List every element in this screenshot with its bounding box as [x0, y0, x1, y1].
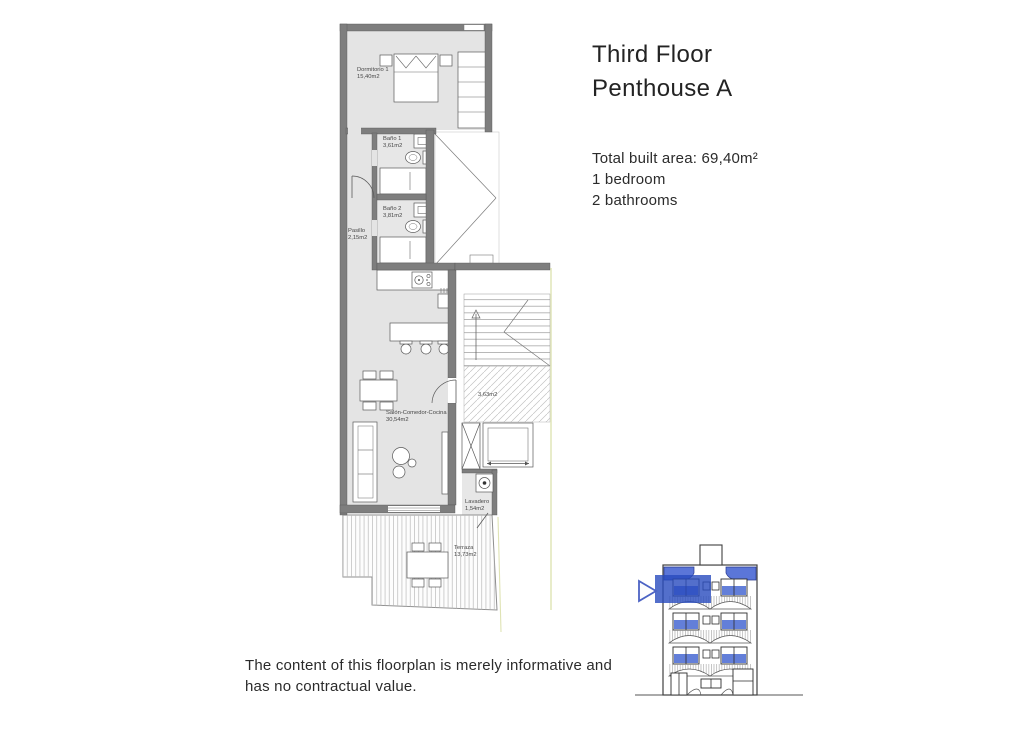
- label-dormitorio-area: 15,40m2: [357, 74, 380, 80]
- label-terraza-area: 13,73m2: [454, 552, 477, 558]
- kitchen-island: [390, 323, 452, 341]
- label-bano1-area: 3,61m2: [383, 143, 402, 149]
- washing-machine: [476, 474, 493, 492]
- penthouse-pointer-icon: [639, 581, 656, 601]
- total-built-area: Total built area: 69,40m²: [592, 148, 758, 169]
- staircase: [464, 294, 550, 422]
- label-salon: Salón-Comedor-Cocina: [386, 410, 447, 416]
- label-pasillo-area: 2,15m2: [348, 235, 367, 241]
- sofa: [353, 422, 377, 502]
- label-bano2-area: 3,81m2: [383, 213, 402, 219]
- label-terraza: Terraza: [454, 545, 474, 551]
- label-lavadero: Lavadero: [465, 499, 489, 505]
- label-pasillo: Pasillo: [348, 228, 365, 234]
- disclaimer-line-1: The content of this floorplan is merely …: [245, 655, 612, 676]
- page: Dormitorio 1 15,40m2 Baño 1 3,61m2 Baño …: [0, 0, 1024, 732]
- title-line-2: Penthouse A: [592, 72, 733, 106]
- label-salon-area: 30,54m2: [386, 417, 409, 423]
- wardrobe: [458, 52, 486, 128]
- terrace: [340, 512, 500, 612]
- landing-area: [464, 366, 550, 422]
- label-lavadero-area: 1,54m2: [465, 506, 484, 512]
- label-dormitorio: Dormitorio 1: [357, 67, 389, 73]
- elevator: [462, 423, 533, 469]
- penthouse-highlight: [655, 575, 711, 603]
- building-elevation: [633, 533, 808, 708]
- page-title: Third Floor Penthouse A: [592, 38, 733, 106]
- stools: [400, 341, 450, 354]
- tv-bench: [442, 432, 448, 494]
- floor-plan: Dormitorio 1 15,40m2 Baño 1 3,61m2 Baño …: [330, 22, 555, 637]
- title-line-1: Third Floor: [592, 38, 733, 72]
- summary-block: Total built area: 69,40m² 1 bedroom 2 ba…: [592, 148, 758, 211]
- bathrooms-count: 2 bathrooms: [592, 190, 758, 211]
- label-bano1: Baño 1: [383, 136, 401, 142]
- label-bano2: Baño 2: [383, 206, 401, 212]
- disclaimer-line-2: has no contractual value.: [245, 676, 612, 697]
- disclaimer: The content of this floorplan is merely …: [245, 655, 612, 697]
- void-area: [435, 132, 499, 265]
- awning-right: [726, 567, 756, 580]
- label-landing-area: 3,63m2: [478, 392, 497, 398]
- bedrooms-count: 1 bedroom: [592, 169, 758, 190]
- roof-box: [700, 545, 722, 565]
